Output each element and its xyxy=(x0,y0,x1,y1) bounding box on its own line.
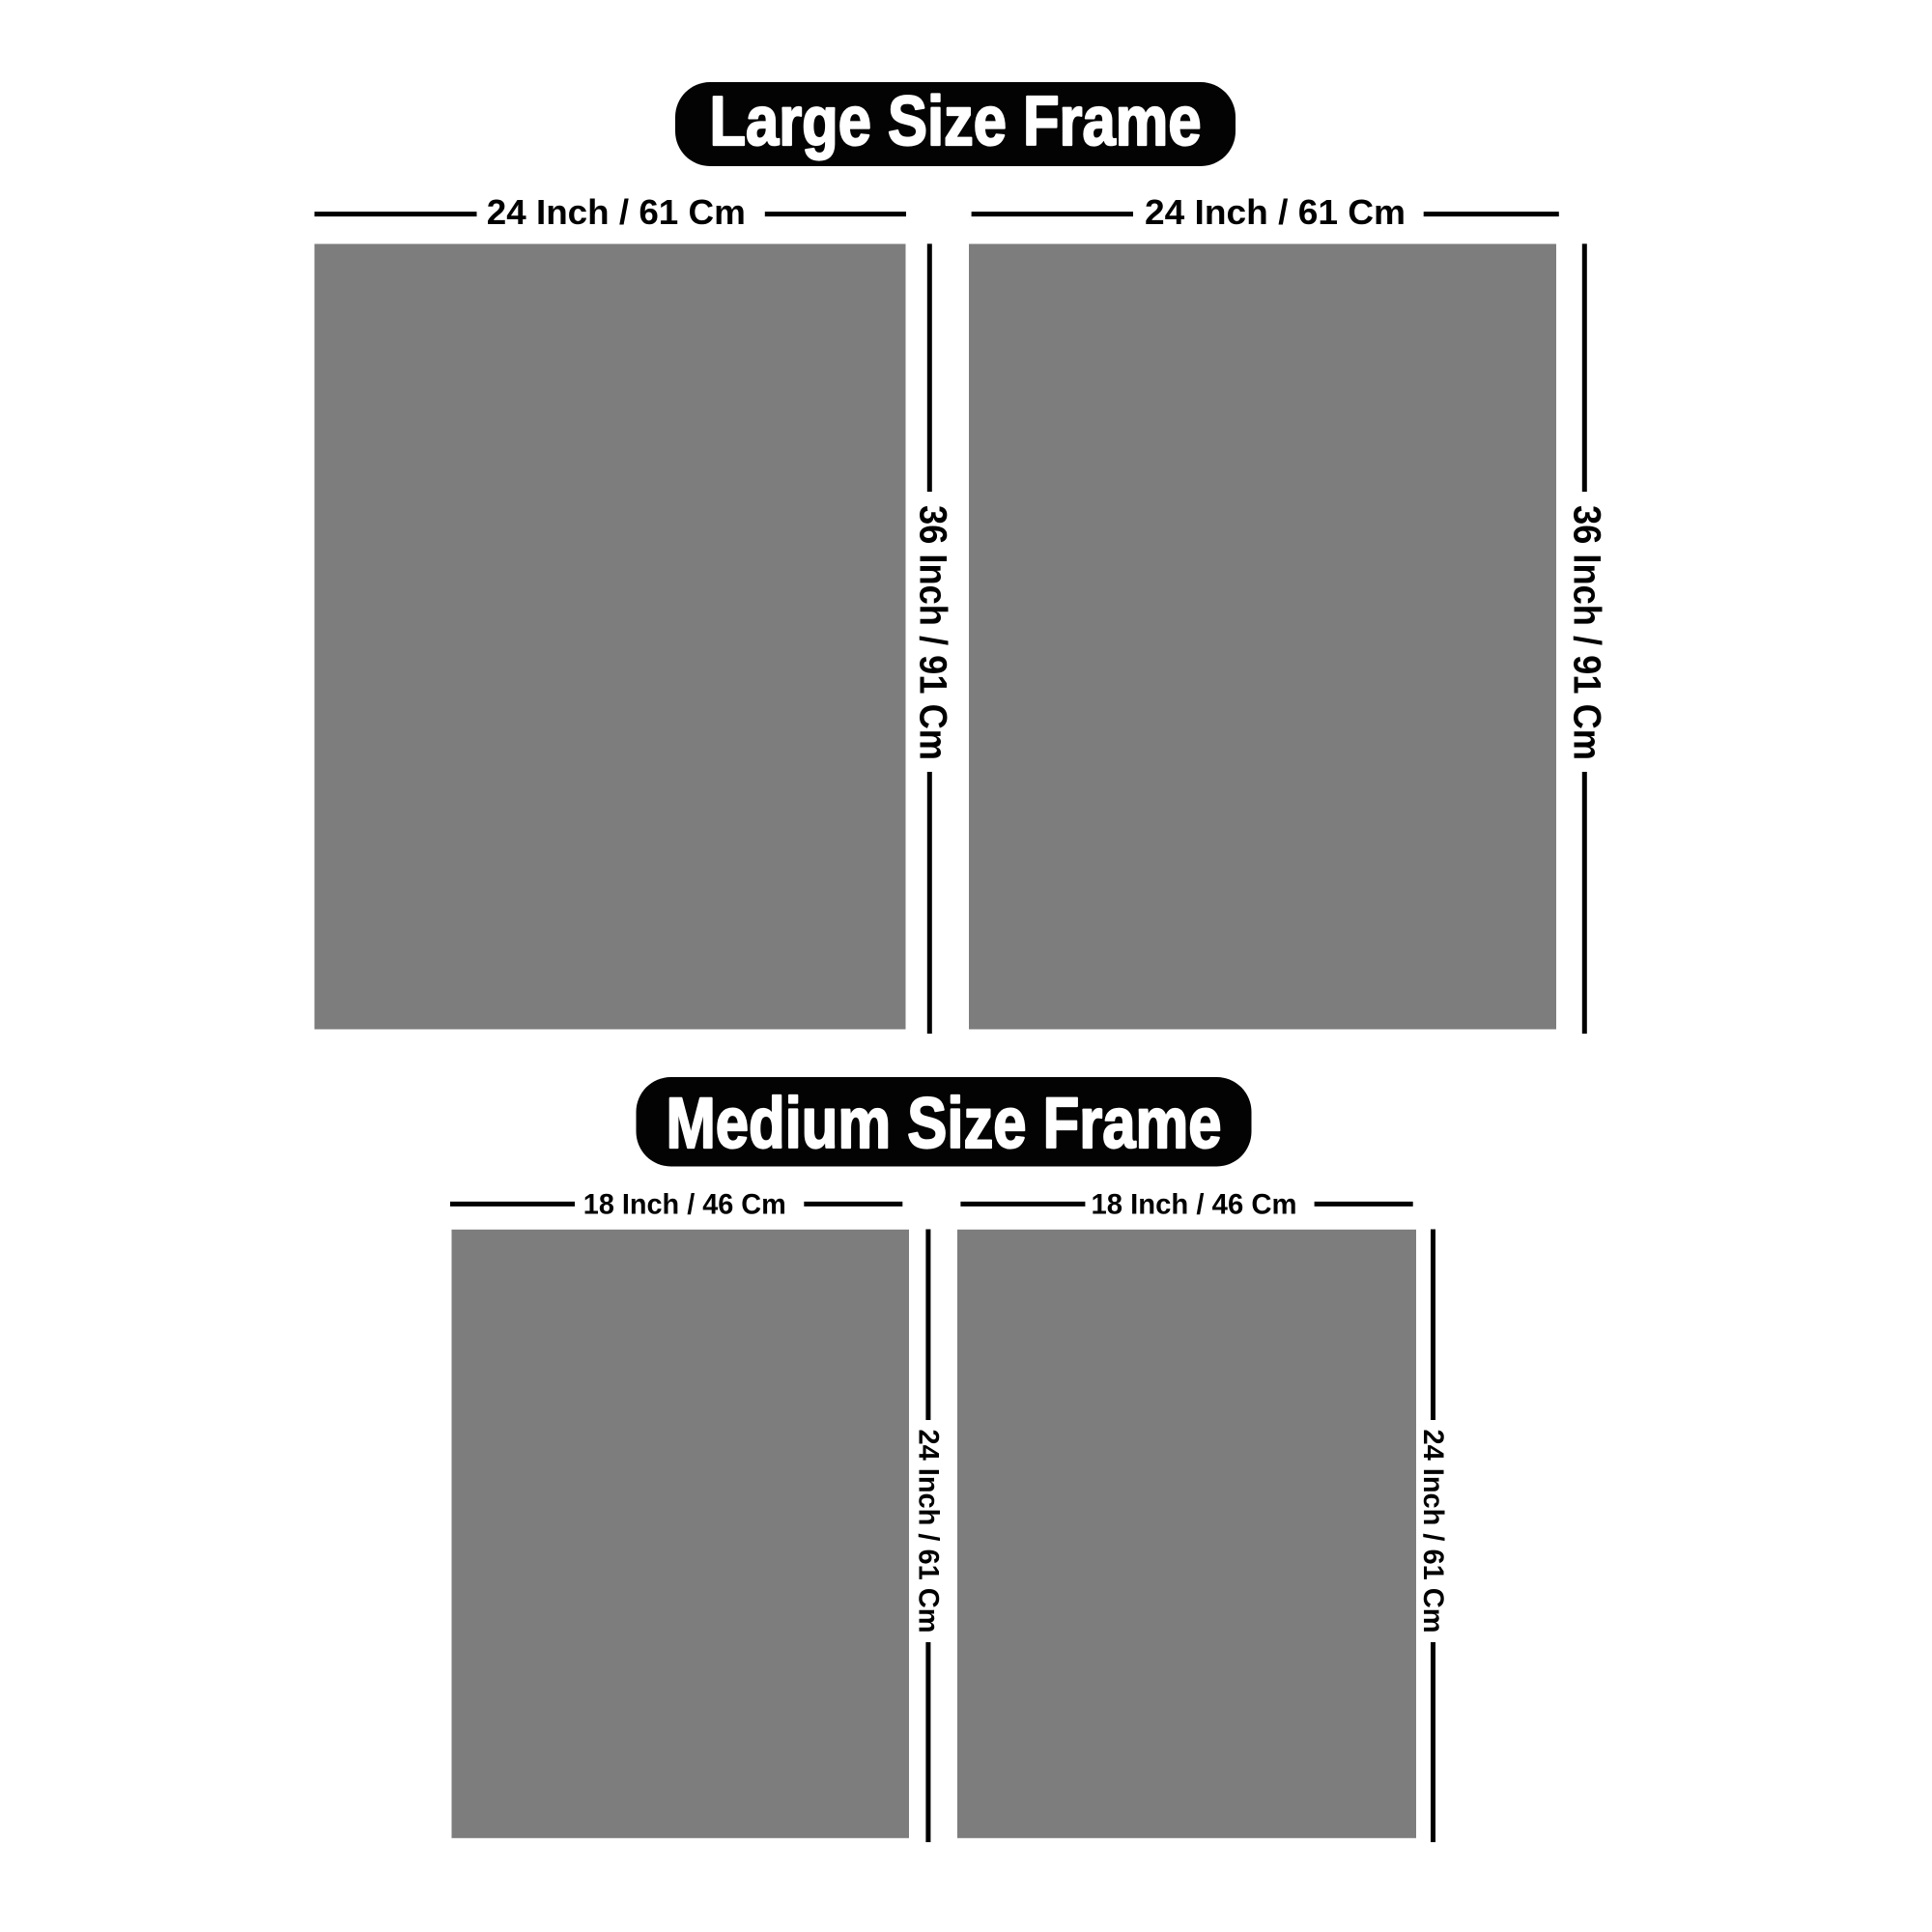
svg-text:18 Inch / 46 Cm: 18 Inch / 46 Cm xyxy=(583,1189,786,1221)
svg-text:Medium Size Frame: Medium Size Frame xyxy=(667,1083,1222,1163)
svg-text:18 Inch / 46 Cm: 18 Inch / 46 Cm xyxy=(1092,1189,1297,1221)
svg-text:36 Inch / 91 Cm: 36 Inch / 91 Cm xyxy=(911,505,953,760)
svg-text:24 Inch / 61 Cm: 24 Inch / 61 Cm xyxy=(912,1430,944,1634)
svg-text:36 Inch / 91 Cm: 36 Inch / 91 Cm xyxy=(1565,505,1607,760)
svg-text:Large Size Frame: Large Size Frame xyxy=(710,83,1202,160)
svg-text:24 Inch / 61 Cm: 24 Inch / 61 Cm xyxy=(487,192,746,232)
svg-text:24 Inch / 61 Cm: 24 Inch / 61 Cm xyxy=(1417,1430,1449,1634)
svg-text:24 Inch / 61 Cm: 24 Inch / 61 Cm xyxy=(1145,192,1406,232)
